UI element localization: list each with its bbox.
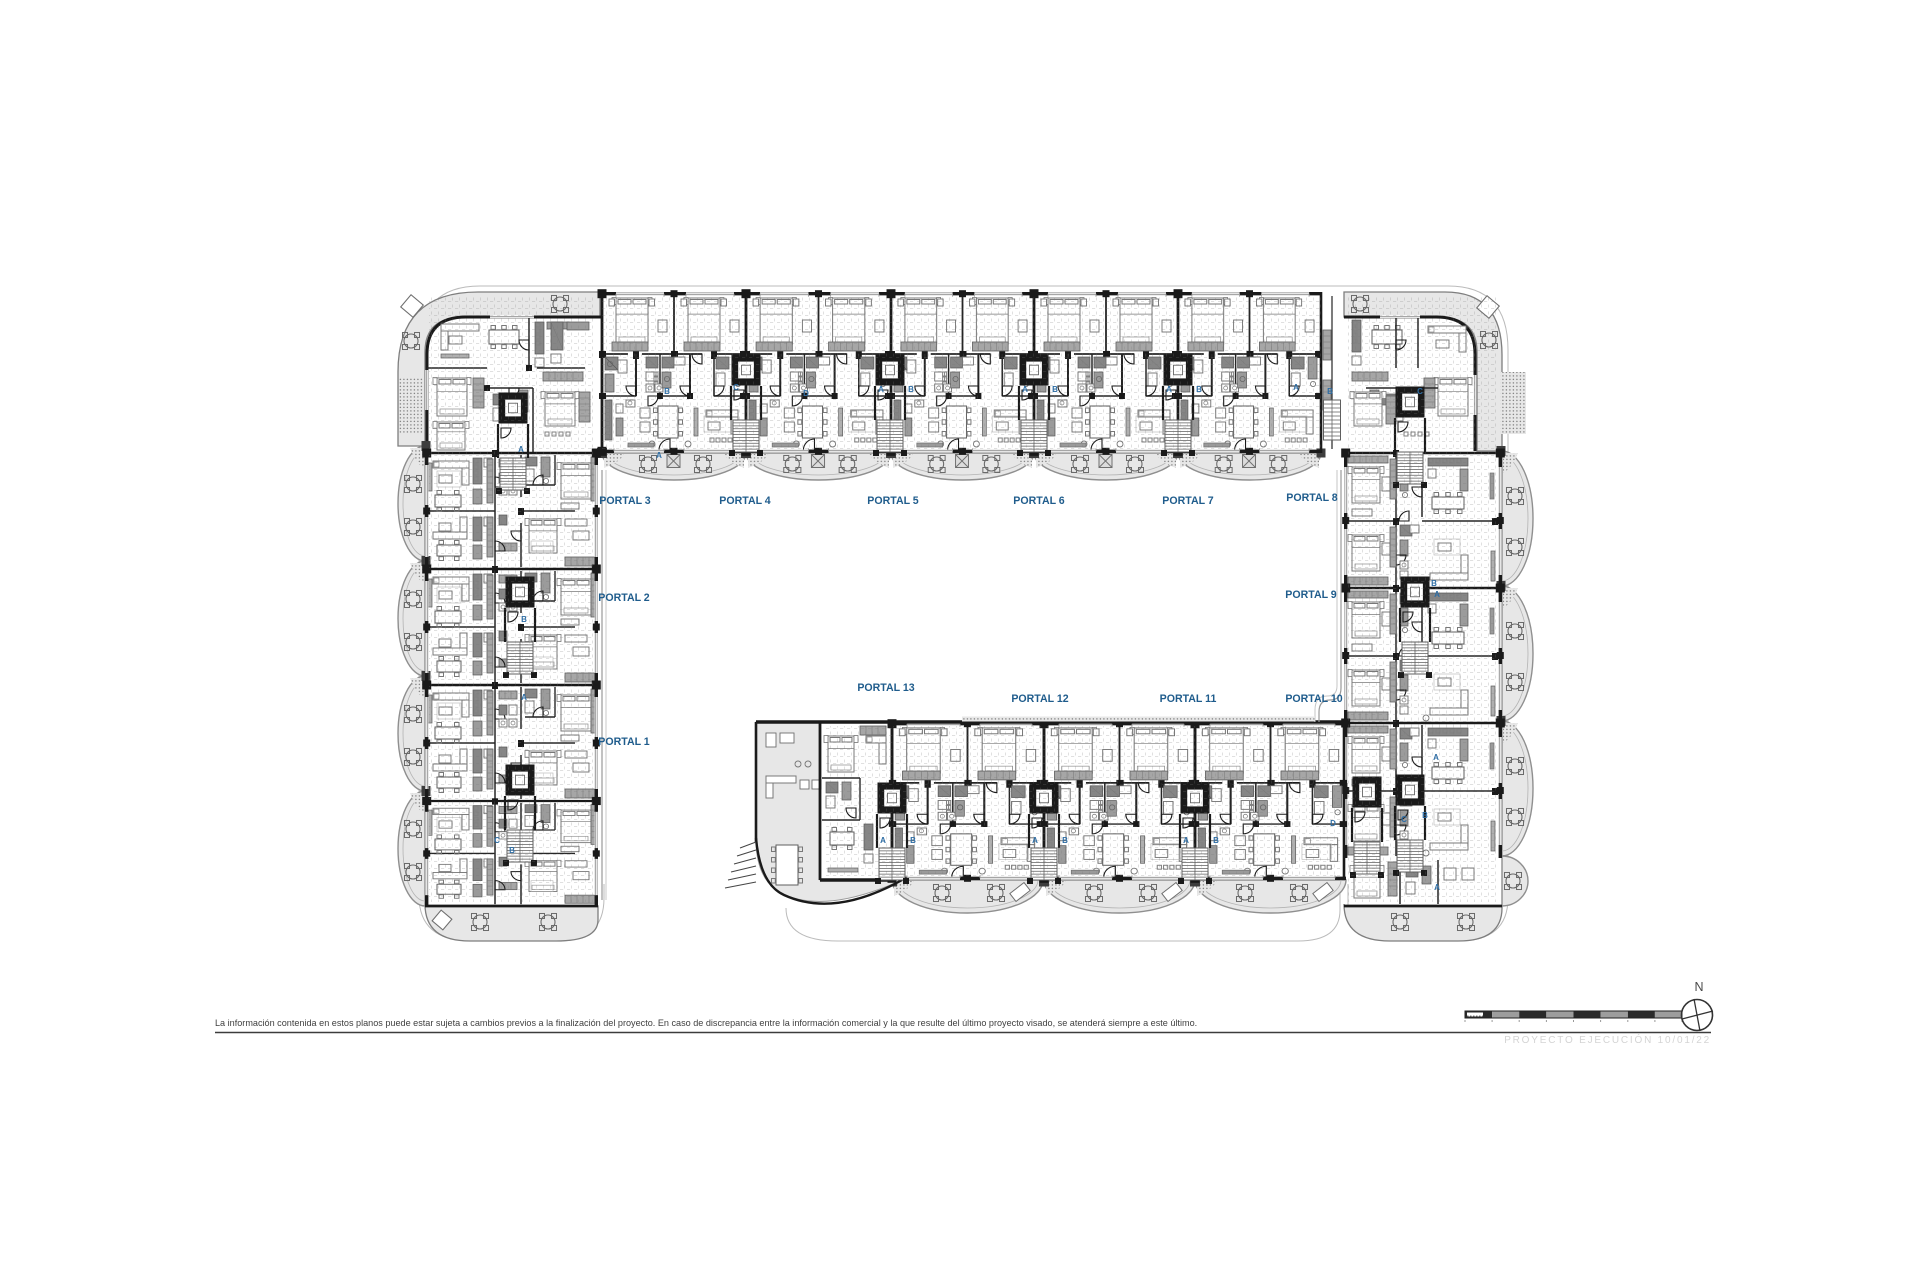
svg-text:B: B xyxy=(1196,385,1202,394)
svg-text:B: B xyxy=(1431,579,1437,588)
svg-text:D: D xyxy=(1330,819,1336,828)
svg-text:C: C xyxy=(494,836,500,845)
svg-text:PORTAL 11: PORTAL 11 xyxy=(1160,693,1217,705)
svg-text:B: B xyxy=(1422,811,1428,820)
svg-text:A: A xyxy=(880,836,886,845)
svg-text:B: B xyxy=(1327,387,1333,396)
svg-text:A: A xyxy=(1183,836,1189,845)
svg-text:C: C xyxy=(733,383,739,392)
svg-text:A: A xyxy=(518,445,524,454)
svg-text:D: D xyxy=(803,389,809,398)
svg-text:B: B xyxy=(910,836,916,845)
svg-text:PORTAL 5: PORTAL 5 xyxy=(867,495,919,507)
svg-text:PORTAL 4: PORTAL 4 xyxy=(719,495,771,507)
svg-text:A: A xyxy=(878,385,884,394)
svg-text:PORTAL 2: PORTAL 2 xyxy=(598,592,650,604)
svg-text:PORTAL 9: PORTAL 9 xyxy=(1285,589,1337,601)
svg-text:B: B xyxy=(664,387,670,396)
svg-text:A: A xyxy=(1166,385,1172,394)
svg-text:PORTAL 6: PORTAL 6 xyxy=(1013,495,1065,507)
svg-text:B: B xyxy=(1052,385,1058,394)
svg-text:B: B xyxy=(1062,836,1068,845)
svg-text:N: N xyxy=(1694,980,1703,994)
svg-text:A: A xyxy=(1434,883,1440,892)
svg-text:PROYECTO EJECUCIÓN 10/01/22: PROYECTO EJECUCIÓN 10/01/22 xyxy=(1504,1033,1711,1046)
svg-text:PORTAL 12: PORTAL 12 xyxy=(1011,693,1068,705)
svg-text:C: C xyxy=(1417,387,1423,396)
svg-text:PORTAL 10: PORTAL 10 xyxy=(1285,693,1342,705)
svg-text:PORTAL 7: PORTAL 7 xyxy=(1162,495,1214,507)
svg-text:PORTAL 3: PORTAL 3 xyxy=(599,495,651,507)
svg-text:B: B xyxy=(908,385,914,394)
svg-text:PORTAL 13: PORTAL 13 xyxy=(857,682,914,694)
svg-text:A: A xyxy=(1433,753,1439,762)
svg-text:La información contenida en es: La información contenida en estos planos… xyxy=(215,1018,1197,1028)
svg-text:B: B xyxy=(1213,836,1219,845)
svg-text:PORTAL 1: PORTAL 1 xyxy=(598,736,650,748)
svg-text:A: A xyxy=(1022,385,1028,394)
svg-text:PORTAL 8: PORTAL 8 xyxy=(1286,492,1338,504)
svg-text:A: A xyxy=(1434,590,1440,599)
svg-text:A: A xyxy=(1293,383,1299,392)
svg-text:B: B xyxy=(509,846,515,855)
svg-text:B: B xyxy=(521,615,527,624)
svg-text:C: C xyxy=(1401,815,1407,824)
svg-text:A: A xyxy=(1032,836,1038,845)
svg-text:A: A xyxy=(656,451,662,460)
svg-text:A: A xyxy=(521,693,527,702)
